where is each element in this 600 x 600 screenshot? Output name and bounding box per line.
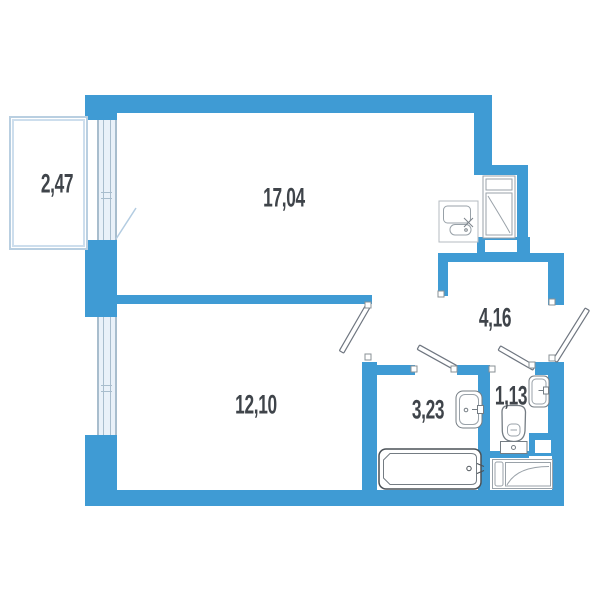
kitchen-niche-opening — [485, 240, 517, 252]
wall-hall-top — [438, 253, 562, 262]
wall-bedroom-bath — [362, 362, 377, 506]
wall-right-upper — [548, 253, 564, 305]
wall-bath-wc-divider — [478, 365, 490, 506]
wall-bath-top-a — [377, 365, 415, 375]
door-jambs — [365, 291, 555, 372]
entry-door-icon — [553, 308, 590, 362]
window-living-icon — [97, 120, 117, 240]
wall-bottom — [85, 490, 564, 506]
room-label-hallway: 4,16 — [479, 303, 511, 334]
wall-kitchen-right — [474, 95, 492, 175]
room-label-living: 17,04 — [263, 183, 305, 214]
bathroom-door-icon — [417, 345, 457, 370]
wall-pier-mid-left — [85, 240, 117, 317]
room-label-balcony: 2,47 — [41, 169, 73, 200]
toilet-icon — [501, 406, 528, 454]
wall-right-lower — [552, 456, 564, 490]
wall-top — [88, 95, 492, 113]
wc-door-icon — [498, 346, 535, 370]
corner-sink-icon — [529, 376, 549, 407]
room-label-bedroom: 12,10 — [235, 390, 277, 421]
wall-pier-top-left — [85, 95, 117, 120]
balcony-door-swing — [116, 208, 136, 239]
wall-right-mid — [548, 362, 564, 433]
floor-plan: 2,47 17,04 12,10 4,16 3,23 1,13 — [0, 0, 600, 600]
wall-room-divider — [117, 295, 372, 304]
wall-hall-stub — [438, 262, 448, 296]
washing-machine-icon — [493, 460, 553, 489]
room-label-wc: 1,13 — [495, 381, 527, 412]
refrigerator-icon — [483, 176, 515, 238]
room-label-bathroom: 3,23 — [412, 395, 444, 426]
bedroom-door-icon — [339, 305, 370, 353]
vent-duct-icon — [535, 440, 551, 453]
kitchen-sink-icon — [439, 201, 478, 242]
window-bedroom-icon — [97, 317, 117, 435]
bathtub-icon — [379, 449, 484, 489]
wall-wc-niche-top — [490, 451, 529, 458]
